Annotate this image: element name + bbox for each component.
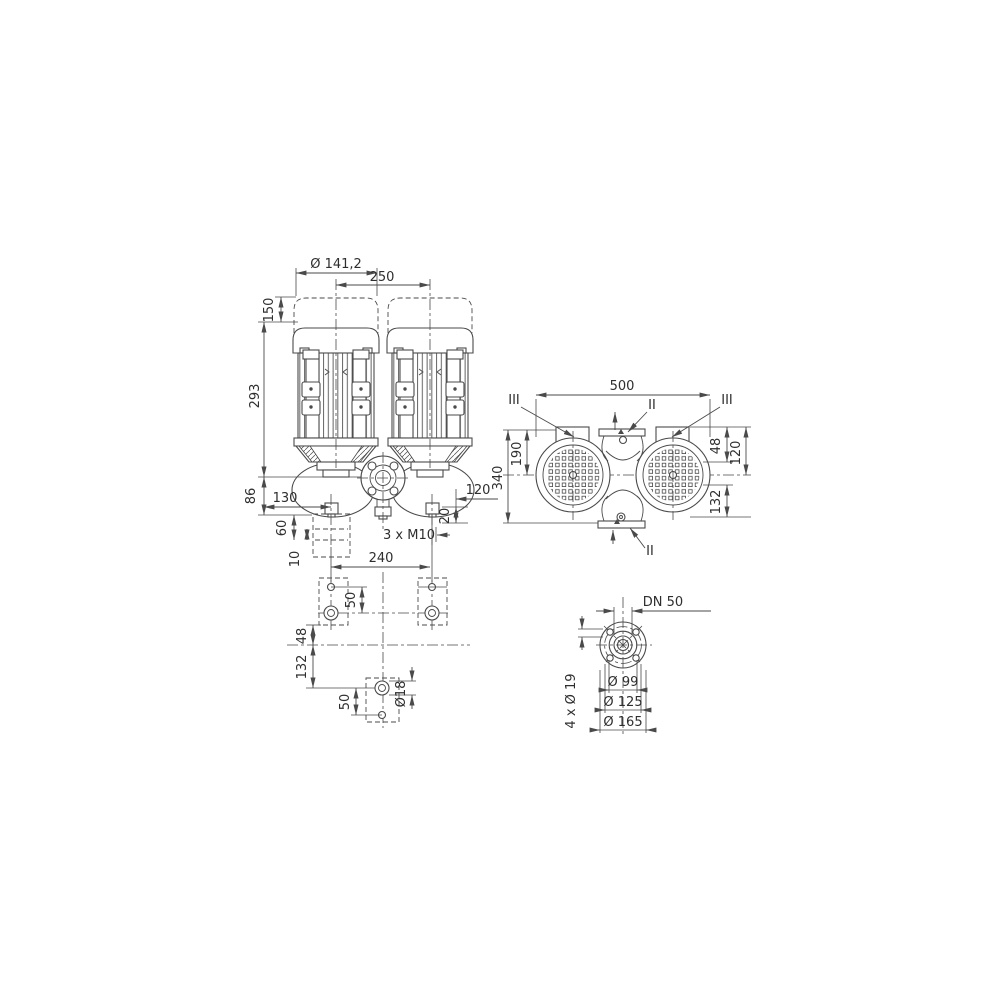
technical-drawing-page: Ø 141,2 250 150 293 86 130 120 20 <box>0 0 1000 1000</box>
section-marker-left: III <box>508 393 520 408</box>
front-view: Ø 141,2 250 150 293 86 130 120 20 <box>244 257 498 582</box>
anchor-hole-group-bottom <box>351 678 399 722</box>
dim-row-offset-lower: 132 <box>295 655 310 680</box>
plan-dimensions: 50 48 132 50 Ø18 <box>295 587 416 715</box>
motor-end-left <box>536 427 610 520</box>
section-marker-right: III <box>721 393 733 408</box>
dim-bolt-holes: 4 x Ø 19 <box>564 673 579 728</box>
dim-hole-offset-bottom: 50 <box>338 694 353 711</box>
dim-offset-upper: 48 <box>709 438 724 455</box>
dim-row-offset-upper: 48 <box>295 628 310 645</box>
side-view: 500 III III II II 340 190 48 120 132 <box>491 379 751 559</box>
dim-base-height: 86 <box>244 488 259 505</box>
dim-nominal-diameter: DN 50 <box>643 595 683 610</box>
dim-hole-diameter: Ø18 <box>394 681 409 708</box>
pump-dimensional-drawing: Ø 141,2 250 150 293 86 130 120 20 <box>0 0 1000 1000</box>
dim-foot-height: 60 <box>275 520 290 537</box>
dim-outer-diameter: Ø 165 <box>603 715 642 730</box>
plan-view: 50 48 132 50 Ø18 <box>287 572 470 728</box>
anchor-hole-group-top-left <box>319 578 367 625</box>
dim-axis-spacing: 250 <box>370 270 395 285</box>
dim-bolt-circle: Ø 125 <box>603 695 642 710</box>
section-marker-top: II <box>648 398 656 413</box>
dim-shim-height: 10 <box>288 551 303 568</box>
dim-motor-diameter: Ø 141,2 <box>310 257 362 272</box>
dim-raised-face: Ø 99 <box>608 675 639 690</box>
flange-dimensions: DN 50 4 x Ø 19 Ø 99 Ø 125 Ø 165 <box>564 595 711 733</box>
dim-upper-height: 190 <box>510 442 525 467</box>
dim-overall-height: 340 <box>491 466 506 491</box>
section-marker-bottom: II <box>646 544 654 559</box>
side-dimensions: 500 III III II II 340 190 48 120 132 <box>491 379 751 559</box>
dim-drain-offset-left: 130 <box>273 491 298 506</box>
dim-anchor-spacing: 240 <box>369 551 394 566</box>
dim-thread-label: 3 x M10 <box>383 528 435 543</box>
dim-hole-offset-top: 50 <box>344 592 359 609</box>
anchor-hole-group-top-right <box>418 578 447 625</box>
dim-motor-height: 293 <box>248 384 263 409</box>
dim-offset-lower: 132 <box>709 490 724 515</box>
dim-overall-width: 500 <box>610 379 635 394</box>
dim-removal-clearance: 150 <box>262 298 277 323</box>
flange-detail-view: DN 50 4 x Ø 19 Ø 99 Ø 125 Ø 165 <box>564 595 711 734</box>
dim-plug-offset: 20 <box>438 508 453 525</box>
foundation-block <box>313 514 350 557</box>
motor-end-right <box>636 427 710 520</box>
dim-port-height: 120 <box>729 441 744 466</box>
dim-drain-offset-right: 120 <box>466 483 491 498</box>
